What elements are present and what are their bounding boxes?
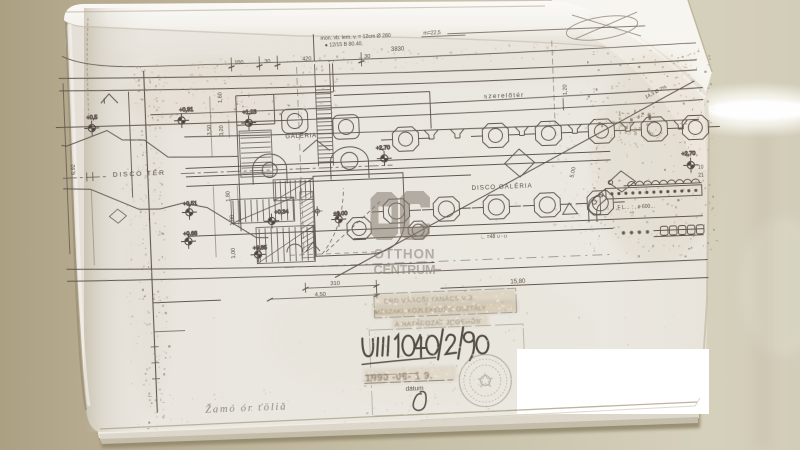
svg-text:10: 10 xyxy=(698,165,704,171)
svg-text:3,50: 3,50 xyxy=(207,125,213,136)
svg-text:15,80: 15,80 xyxy=(510,279,526,286)
svg-text:3,20: 3,20 xyxy=(219,125,225,136)
svg-text:+0,51: +0,51 xyxy=(183,201,197,208)
svg-text:+0,34: +0,34 xyxy=(274,209,288,216)
svg-text:+0,5: +0,5 xyxy=(86,115,97,121)
svg-text:1,80: 1,80 xyxy=(225,191,231,202)
svg-text:+1,23: +1,23 xyxy=(242,110,256,117)
svg-text:m=22,5: m=22,5 xyxy=(423,30,441,37)
svg-text:1,60: 1,60 xyxy=(218,92,224,103)
svg-text:1,00: 1,00 xyxy=(231,248,237,259)
svg-text:310: 310 xyxy=(330,281,340,287)
svg-text:+0,68: +0,68 xyxy=(183,231,197,238)
svg-text:+2,70: +2,70 xyxy=(376,145,390,152)
svg-text:1,20: 1,20 xyxy=(562,84,568,95)
svg-text:1,00: 1,00 xyxy=(229,215,235,226)
svg-text:OTTHON: OTTHON xyxy=(374,247,436,262)
svg-text:3830: 3830 xyxy=(391,47,405,54)
svg-text:CENTRUM: CENTRUM xyxy=(374,262,436,277)
svg-text:420: 420 xyxy=(302,56,311,62)
svg-text:∟ =48 ∪··∪: ∟ =48 ∪··∪ xyxy=(480,234,507,241)
svg-text:6,92: 6,92 xyxy=(71,164,77,175)
svg-text:30: 30 xyxy=(364,54,370,60)
svg-text:+0,85: +0,85 xyxy=(253,245,267,252)
